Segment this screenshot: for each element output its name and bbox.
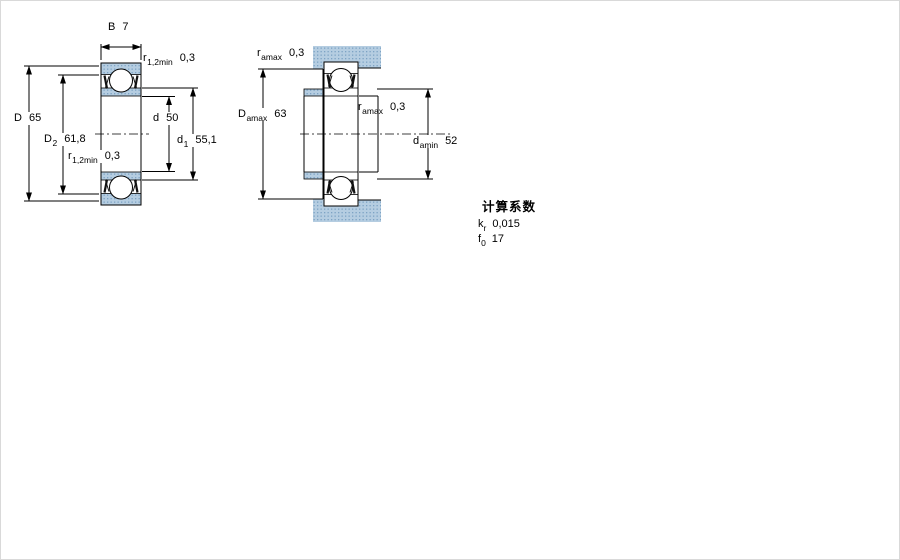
dim-symbol: d <box>413 135 419 147</box>
bearing-drawing-page: B7 r1,2min0,3 D65 D261,8 r1,2min0,3 d50 … <box>0 0 900 560</box>
dim-value: 0,3 <box>180 52 195 64</box>
dim-subscript: amax <box>261 52 282 62</box>
dim-label-d1: d155,1 <box>176 134 218 147</box>
dim-value: 0,3 <box>390 101 405 113</box>
dim-label-ramax-mid: ramax0,3 <box>358 101 405 114</box>
dim-symbol: B <box>108 21 115 33</box>
factor-f0: f017 <box>478 233 504 246</box>
dim-symbol: D <box>44 133 52 145</box>
factor-value: 0,015 <box>492 218 520 230</box>
ball-bottom <box>330 177 353 200</box>
technical-drawing <box>1 1 900 560</box>
dim-value: 63 <box>274 108 286 120</box>
ball-top <box>330 69 353 92</box>
dim-symbol: D <box>238 108 246 120</box>
dim-label-r12-bottom: r1,2min0,3 <box>67 150 121 163</box>
dim-value: 55,1 <box>195 134 216 146</box>
factor-symbol: k <box>478 218 484 230</box>
factor-kr: kr0,015 <box>478 218 520 231</box>
dim-label-ramax-top: ramax0,3 <box>257 47 304 60</box>
dim-label-r12-top: r1,2min0,3 <box>143 52 195 65</box>
dim-label-damin: damin52 <box>412 135 458 148</box>
dim-symbol: D <box>14 112 22 124</box>
dim-value: 65 <box>29 112 41 124</box>
dim-symbol: d <box>153 112 159 124</box>
right-abutment-view <box>258 46 453 222</box>
ball-bottom <box>110 176 133 199</box>
dim-label-d: d50 <box>152 112 179 125</box>
dim-subscript: 2 <box>52 138 57 148</box>
dim-subscript: 1 <box>184 139 189 149</box>
dim-label-D: D65 <box>13 112 42 125</box>
factor-subscript: r <box>484 223 487 233</box>
dim-label-D2: D261,8 <box>43 133 87 146</box>
dim-label-B: B7 <box>108 21 128 34</box>
dim-B-width <box>101 44 141 60</box>
dim-subscript: amin <box>420 140 438 150</box>
calculation-factors-title: 计算系数 <box>482 196 536 215</box>
ball-top <box>110 69 133 92</box>
dim-symbol: d <box>177 134 183 146</box>
factor-value: 17 <box>492 233 504 245</box>
dim-value: 50 <box>166 112 178 124</box>
dim-subscript: 1,2min <box>72 155 98 165</box>
dim-value: 52 <box>445 135 457 147</box>
dim-value: 0,3 <box>105 150 120 162</box>
dim-subscript: amax <box>246 113 267 123</box>
factor-subscript: 0 <box>481 238 486 248</box>
dim-value: 61,8 <box>64 133 85 145</box>
dim-subscript: amax <box>362 106 383 116</box>
dim-subscript: 1,2min <box>147 57 173 67</box>
dim-value: 0,3 <box>289 47 304 59</box>
dim-value: 7 <box>122 21 128 33</box>
dim-label-Damax: Damax63 <box>237 108 288 121</box>
